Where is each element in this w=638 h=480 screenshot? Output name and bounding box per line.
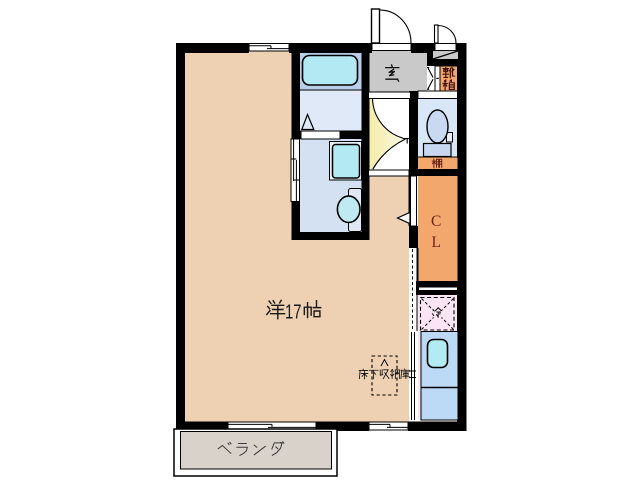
svg-text:L: L (432, 234, 441, 251)
svg-text:C: C (431, 213, 441, 230)
svg-text:17: 17 (285, 301, 302, 324)
